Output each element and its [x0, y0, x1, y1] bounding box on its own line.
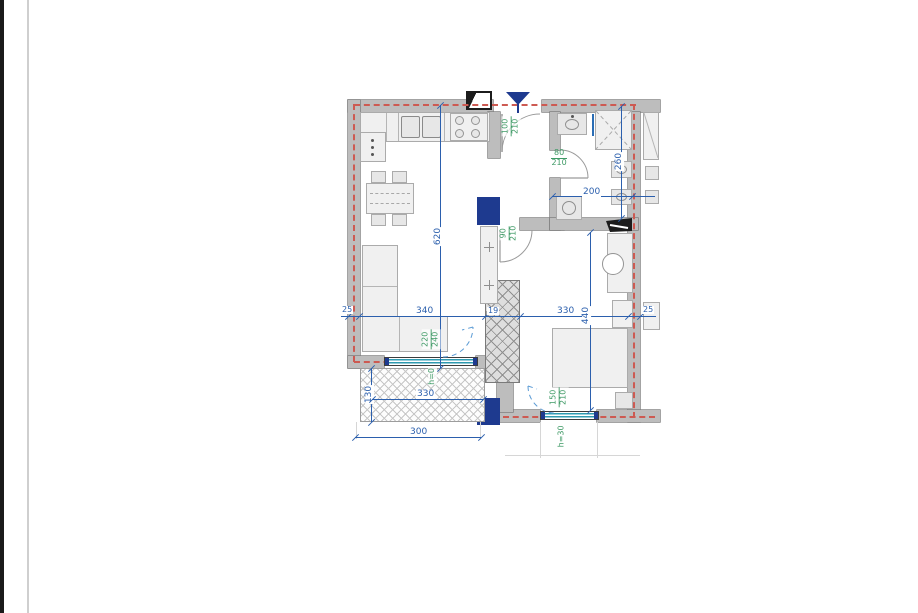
- cabinet-dots: [371, 139, 374, 142]
- insulation-line: [353, 104, 355, 362]
- plan-linework: [0, 0, 918, 613]
- dimension-line: [552, 196, 655, 197]
- wall-vent-box: [466, 91, 492, 110]
- neighbor-cabinet: [643, 112, 659, 160]
- dim-bathroom-width: 200: [582, 188, 601, 197]
- shower-glass-line: [592, 114, 594, 136]
- cabinet-dots: [371, 153, 374, 156]
- dim-balcony-width: 330: [416, 390, 435, 399]
- counter-seam: [444, 113, 445, 141]
- page-edge-line: [27, 0, 29, 613]
- shower: [595, 110, 632, 150]
- dim-living-width: 340: [415, 307, 434, 316]
- insulation-line: [633, 104, 635, 418]
- dining-chair: [371, 214, 386, 226]
- dining-table: [366, 183, 414, 214]
- dim-partition: 19: [487, 307, 499, 315]
- cabinet-dots: [371, 146, 374, 149]
- insulation-line: [354, 104, 636, 106]
- neighbor-fixture: [645, 190, 659, 204]
- dim-wall-right: 25: [642, 306, 654, 314]
- window-edge-strip: [0, 0, 4, 613]
- dim-bedroom-depth: 440: [582, 306, 591, 325]
- dimension-line: [355, 437, 481, 438]
- extension-line: [597, 422, 598, 458]
- dimension-line: [372, 399, 483, 400]
- counter-seam: [386, 113, 387, 141]
- stove-burner: [471, 116, 480, 125]
- dim-balcony-outer: 300: [409, 428, 428, 437]
- label-bedroom-window: 150 210: [550, 383, 569, 411]
- balcony-door-glazing: [384, 357, 478, 366]
- wardrobe-cross: [489, 242, 490, 252]
- stove-burner: [455, 116, 464, 125]
- dim-bathroom-depth: 260: [615, 152, 624, 171]
- dining-chair: [392, 171, 407, 183]
- dining-chair: [371, 171, 386, 183]
- hall-wardrobe: [480, 226, 498, 304]
- label-bathroom-door: 80 210: [551, 149, 567, 168]
- stove-burner: [455, 129, 464, 138]
- wardrobe-cross: [489, 280, 490, 290]
- label-balcony-door: 220 240: [422, 325, 441, 353]
- bedroom-window-glazing: [540, 411, 599, 420]
- label-balcony-door-sill: h=0: [428, 368, 437, 385]
- sofa-back: [362, 245, 398, 317]
- desk-chair: [602, 253, 624, 275]
- extension-line: [540, 422, 541, 458]
- washing-machine: [556, 196, 582, 220]
- kitchen-sink: [401, 116, 420, 138]
- dining-chair: [392, 214, 407, 226]
- counter-seam: [398, 113, 399, 141]
- nightstand: [615, 392, 633, 409]
- label-hall-door: 90 210: [500, 219, 519, 247]
- column: [477, 197, 500, 225]
- dim-living-height: 620: [434, 227, 443, 246]
- bathroom-sink: [557, 113, 587, 135]
- label-bedroom-window-sill: h=30: [558, 425, 567, 447]
- dim-bedroom-width: 330: [556, 307, 575, 316]
- floor-plan-page: 620 25 340 19 330 25 440 200 260 130 330…: [0, 0, 918, 613]
- dimension-line: [341, 316, 656, 317]
- label-entrance-door: 100 210: [502, 112, 521, 140]
- stove-burner: [471, 129, 480, 138]
- dim-wall-left: 25: [341, 306, 353, 314]
- neighbor-fixture: [645, 166, 659, 180]
- kitchen-sink: [422, 116, 441, 138]
- extension-line: [505, 455, 640, 456]
